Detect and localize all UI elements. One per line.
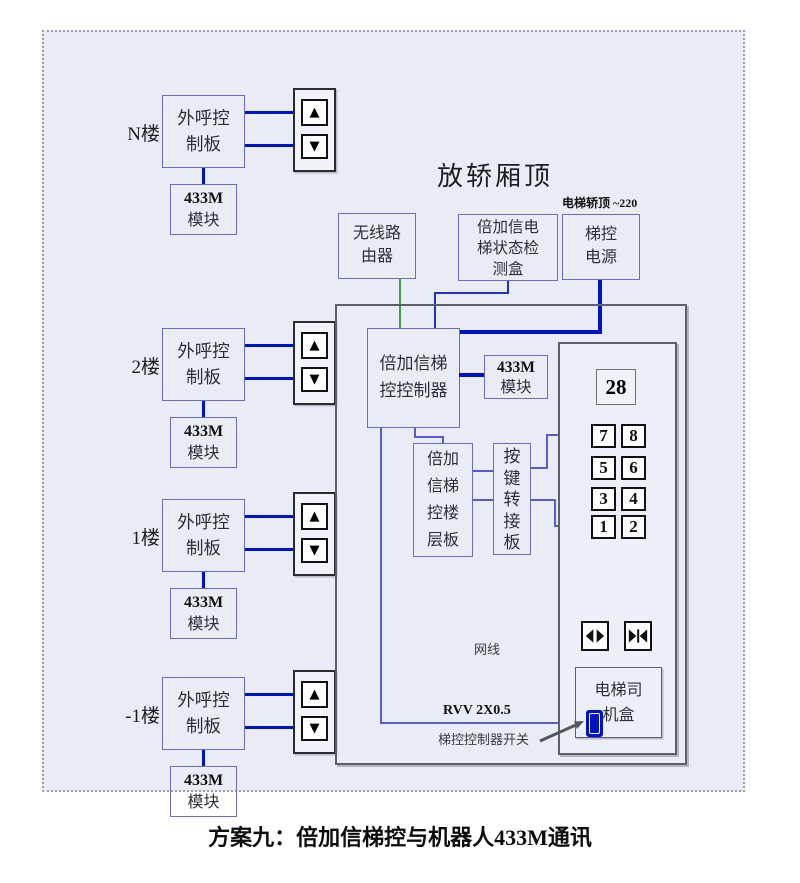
floor-label: N楼 (104, 119, 160, 146)
keypad-button-5: 5 (591, 456, 616, 480)
elevator-control-power-box: 梯控 电源 (562, 214, 640, 280)
schematic-page: N楼 外呼控 制板 ▲ ▼ 433M 模块 2楼 外呼控 制板 (0, 0, 800, 883)
down-arrow-icon: ▼ (301, 134, 328, 159)
call-board-box: 外呼控 制板 (162, 95, 245, 168)
wire-fb-adapter-1 (473, 470, 493, 472)
wire-rvv-v (380, 428, 382, 724)
switch-pointer-arrow (536, 712, 588, 746)
floor-board-box: 倍加 信梯 控楼 层板 (413, 443, 473, 557)
wire-board-up (245, 515, 293, 518)
up-arrow-icon: ▲ (301, 99, 328, 126)
floor-label: 2楼 (104, 352, 160, 379)
wire-board-down (245, 144, 293, 147)
scheme-caption: 方案九：倍加信梯控与机器人433M通讯 (0, 820, 800, 852)
wire-board-up (245, 111, 293, 114)
keypad-button-8: 8 (621, 424, 646, 448)
wire-board-module (202, 401, 205, 417)
elevator-controller-box: 倍加信梯 控控制器 (367, 328, 460, 428)
wire-board-up (245, 344, 293, 347)
keypad-button-4: 4 (621, 487, 646, 511)
wire-controller-module (459, 373, 485, 377)
module-433m-box: 433M 模块 (170, 766, 237, 817)
wire-board-down (245, 377, 293, 380)
floor-label: 1楼 (104, 523, 160, 550)
keypad-button-2: 2 (621, 515, 646, 539)
floor-display: 28 (596, 369, 636, 405)
call-board-box: 外呼控 制板 (162, 677, 245, 750)
power-note-label: 电梯轿顶 ~220 (562, 194, 637, 211)
module-433m-box: 433M 模块 (170, 417, 237, 468)
keypad-button-3: 3 (591, 487, 616, 511)
network-cable-label: 网线 (474, 639, 500, 658)
wire-adapter-7b (546, 434, 548, 469)
wire-adapter-1a (531, 499, 556, 501)
cartop-433m-module-box: 433M 模块 (484, 355, 548, 399)
keypad-button-6: 6 (621, 456, 646, 480)
keypad-button-1: 1 (591, 515, 616, 539)
call-board-box: 外呼控 制板 (162, 499, 245, 572)
door-open-icon (581, 621, 609, 651)
down-arrow-icon: ▼ (301, 716, 328, 741)
down-arrow-icon: ▼ (301, 538, 328, 563)
controller-switch (586, 710, 603, 737)
rvv-cable-label: RVV 2X0.5 (443, 703, 511, 719)
door-close-icon (624, 621, 652, 651)
wire-board-module (202, 168, 205, 184)
wire-board-up (245, 693, 293, 696)
module-433m-box: 433M 模块 (170, 184, 237, 235)
wire-board-module (202, 750, 205, 766)
controller-switch-label: 梯控控制器开关 (438, 729, 529, 748)
wire-ctrl-fb-2 (414, 436, 444, 438)
module-433m-box: 433M 模块 (170, 588, 237, 639)
wire-fb-adapter-2 (473, 499, 493, 501)
button-adapter-board-box: 按 键 转 接 板 (493, 443, 531, 555)
wireless-router-box: 无线路 由器 (338, 213, 416, 279)
elevator-status-detector-box: 倍加信电 梯状态检 测盒 (458, 214, 558, 281)
up-arrow-icon: ▲ (301, 332, 328, 359)
call-board-box: 外呼控 制板 (162, 328, 245, 401)
wire-adapter-1b (554, 499, 556, 527)
wire-board-down (245, 548, 293, 551)
down-arrow-icon: ▼ (301, 367, 328, 392)
up-arrow-icon: ▲ (301, 681, 328, 708)
wire-detector-h (434, 292, 509, 294)
up-arrow-icon: ▲ (301, 503, 328, 530)
keypad-button-7: 7 (591, 424, 616, 448)
cartop-title: 放轿厢顶 (420, 156, 570, 193)
wire-board-module (202, 572, 205, 588)
floor-label: -1楼 (104, 701, 160, 728)
wire-board-down (245, 726, 293, 729)
